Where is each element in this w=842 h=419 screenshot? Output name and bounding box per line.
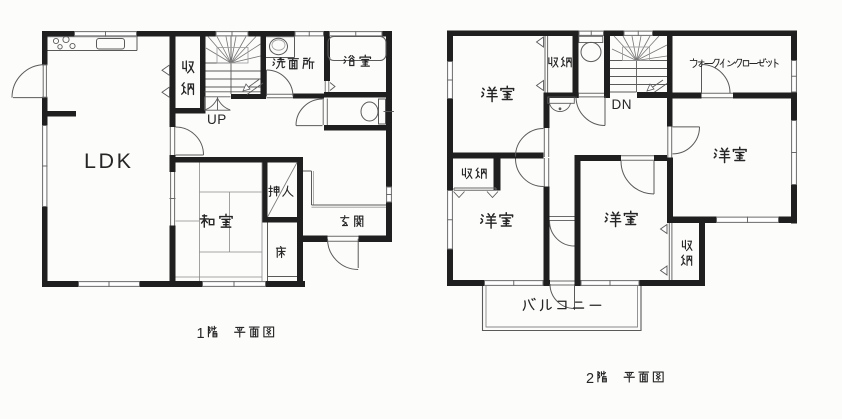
svg-text:UP: UP xyxy=(207,112,227,127)
svg-text:2: 2 xyxy=(586,371,594,387)
svg-text:1: 1 xyxy=(197,326,205,342)
svg-text:LDK: LDK xyxy=(84,149,134,173)
svg-text:DN: DN xyxy=(612,97,633,112)
